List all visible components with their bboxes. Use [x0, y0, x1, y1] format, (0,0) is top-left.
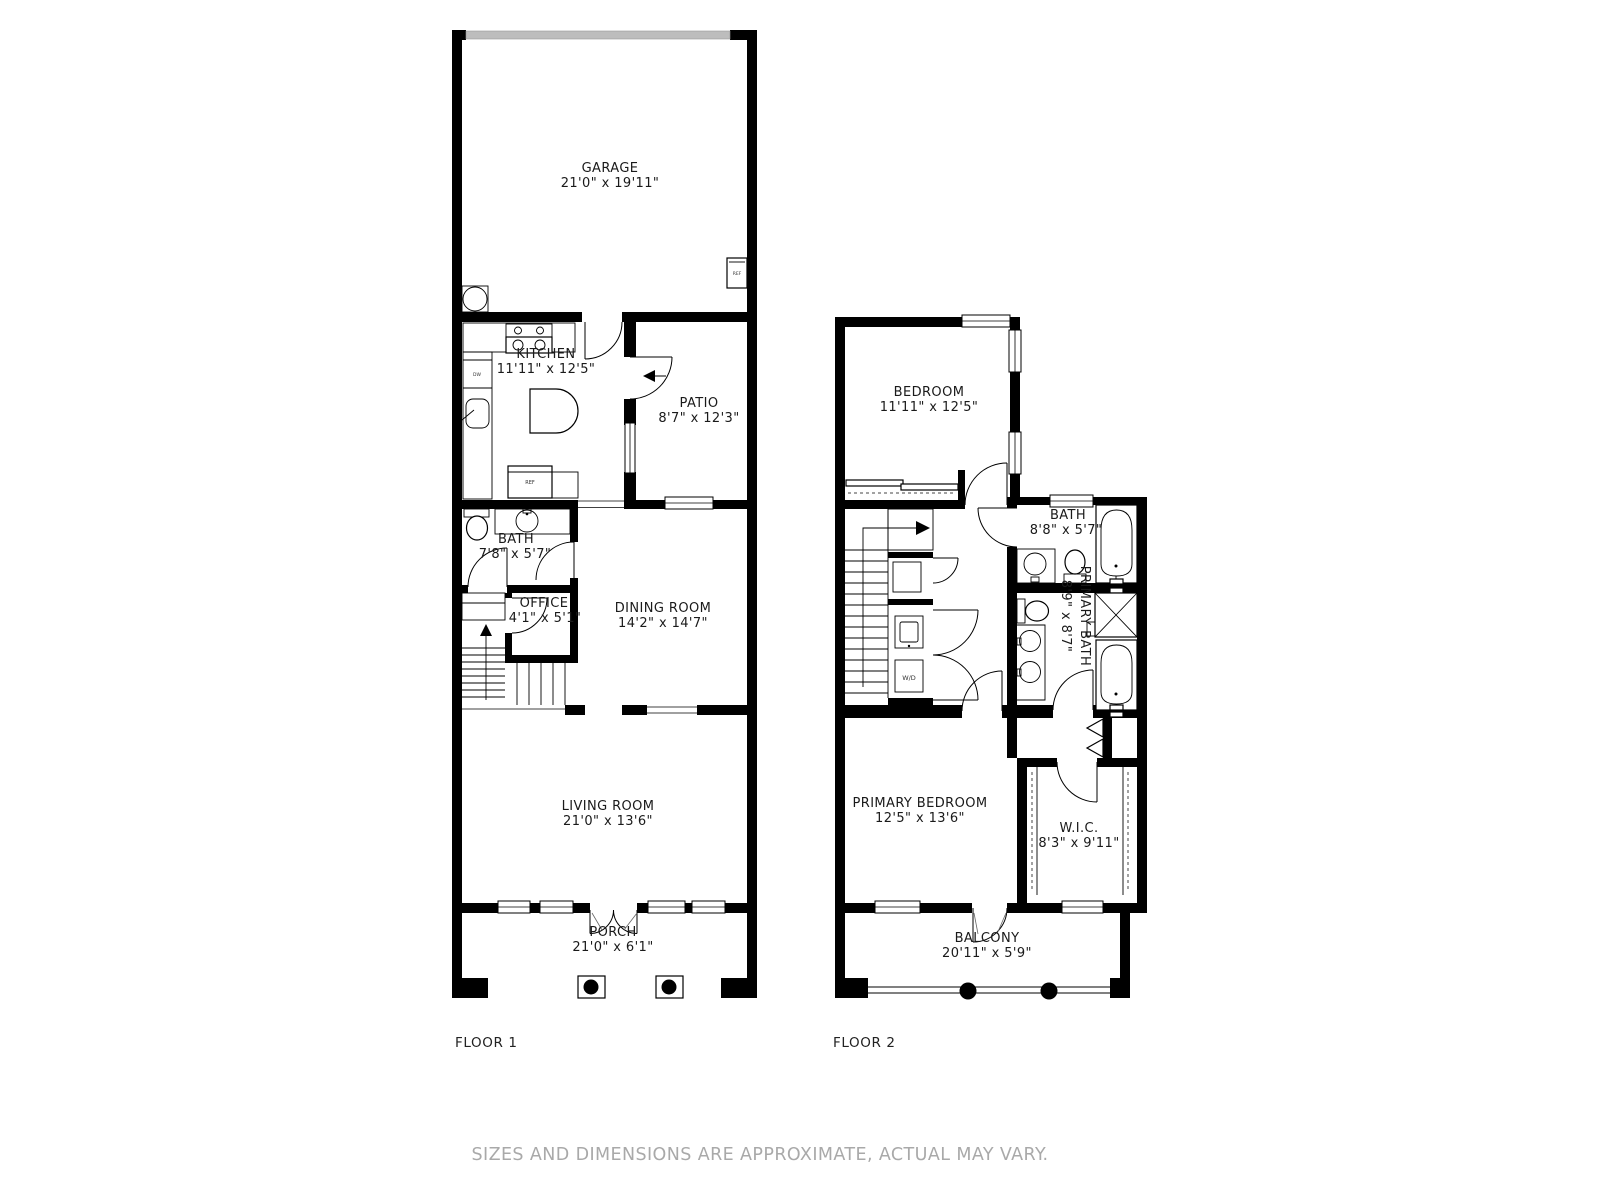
kitchen-ref-label: REF	[525, 480, 535, 486]
room-name: PORCH	[589, 925, 636, 940]
room-name: BALCONY	[955, 931, 1020, 946]
kitchen-patio-wall	[624, 312, 672, 502]
washer-dryer-label: W/D	[902, 674, 916, 682]
water-heater-icon	[462, 286, 488, 312]
room-dims: 20'11" x 5'9"	[942, 946, 1032, 961]
room-dims: 11'11" x 12'5"	[880, 400, 979, 415]
floor1-bath-sink-icon	[495, 509, 570, 534]
porch-column-icon	[578, 976, 605, 998]
room-label-porch: PORCH 21'0" x 6'1"	[572, 925, 653, 955]
room-dims: 8'7" x 12'3"	[658, 411, 739, 426]
bedroom-closet	[835, 470, 965, 509]
floorplan-page: GARAGE 21'0" x 19'11" KITCHEN 11'11" x 1…	[0, 0, 1600, 1200]
room-label-bedroom: BEDROOM 11'11" x 12'5"	[880, 385, 979, 415]
kitchen-dining-wall	[452, 500, 624, 509]
floor2-bath-sink-icon	[1017, 549, 1055, 583]
room-name: PRIMARY BEDROOM	[853, 796, 988, 811]
room-dims: 21'0" x 19'11"	[561, 176, 660, 191]
kitchen-island	[530, 389, 578, 433]
understair-closet	[462, 593, 505, 620]
room-label-patio: PATIO 8'7" x 12'3"	[658, 396, 739, 426]
garage-ref-label: REF	[733, 271, 742, 277]
room-label-balcony: BALCONY 20'11" x 5'9"	[942, 931, 1032, 961]
floor1-toilet-icon	[464, 509, 489, 540]
dining-living-wall	[462, 705, 757, 715]
primary-bedroom-door	[962, 671, 1002, 711]
room-name: BEDROOM	[894, 385, 965, 400]
room-label-living: LIVING ROOM 21'0" x 13'6"	[562, 799, 655, 829]
room-dims: 4'1" x 5'1"	[509, 611, 582, 626]
room-dims: 8'8" x 5'7"	[1030, 523, 1103, 538]
dishwasher-label: DW	[473, 372, 481, 378]
kitchen-refrigerator-icon	[508, 466, 578, 498]
floorplan-drawing: GARAGE 21'0" x 19'11" KITCHEN 11'11" x 1…	[0, 0, 1600, 1200]
room-name: DINING ROOM	[615, 601, 711, 616]
primary-vanity	[1017, 625, 1045, 700]
primary-bath-door	[1053, 670, 1093, 710]
room-dims: 21'0" x 6'1"	[572, 940, 653, 955]
porch-column-icon	[656, 976, 683, 998]
room-name: BATH	[1050, 508, 1086, 523]
linen-closet-bifold-icon	[1087, 719, 1103, 757]
room-name: KITCHEN	[516, 347, 575, 362]
floor2-plan: BEDROOM 11'11" x 12'5" BATH 8'8" x 5'7" …	[835, 315, 1147, 1000]
room-dims: 12'5" x 13'6"	[875, 811, 965, 826]
bedroom-door	[965, 463, 1007, 505]
stairs-direction-arrow-icon	[916, 521, 930, 535]
room-name: PRIMARY BATH	[1077, 566, 1092, 666]
kitchen-sink-icon	[462, 399, 489, 428]
entry-arrow-icon	[643, 370, 655, 382]
hall-closet	[888, 552, 958, 605]
washer-icon	[895, 616, 923, 648]
stairs-up-arrow-icon	[480, 624, 492, 636]
bathtub-icon	[1096, 505, 1137, 597]
room-label-primary-bedroom: PRIMARY BEDROOM 12'5" x 13'6"	[853, 796, 988, 826]
shower-icon	[1087, 593, 1137, 637]
room-label-dining: DINING ROOM 14'2" x 14'7"	[615, 601, 711, 631]
room-label-wic: W.I.C. 8'3" x 9'11"	[1038, 821, 1119, 851]
floor2-label: FLOOR 2	[833, 1035, 896, 1051]
room-name: BATH	[498, 532, 534, 547]
primary-toilet-icon	[1017, 599, 1049, 623]
floor1-stairs	[462, 624, 565, 705]
room-dims: 11'11" x 12'5"	[497, 362, 596, 377]
room-label-garage: GARAGE 21'0" x 19'11"	[561, 161, 660, 191]
room-name: LIVING ROOM	[562, 799, 655, 814]
room-label-primary-bath: PRIMARY BATH 8'9" x 8'7"	[1058, 566, 1092, 666]
balcony-column-icon	[960, 983, 977, 1000]
room-label-bath1: BATH 7'8" x 5'7"	[479, 532, 552, 562]
room-name: OFFICE	[520, 596, 569, 611]
laundry-closet	[888, 610, 978, 705]
floor1-plan: GARAGE 21'0" x 19'11" KITCHEN 11'11" x 1…	[452, 28, 757, 998]
balcony-column-icon	[1041, 983, 1058, 1000]
primary-bathtub-icon	[1096, 640, 1137, 717]
room-name: GARAGE	[582, 161, 639, 176]
floor1-label: FLOOR 1	[455, 1035, 518, 1051]
primary-bath	[1017, 593, 1137, 717]
disclaimer-text: SIZES AND DIMENSIONS ARE APPROXIMATE, AC…	[472, 1145, 1049, 1165]
room-dims: 8'9" x 8'7"	[1058, 580, 1073, 653]
patio-wall	[624, 497, 757, 509]
room-name: W.I.C.	[1059, 821, 1098, 836]
room-dims: 21'0" x 13'6"	[563, 814, 653, 829]
garage-door	[466, 28, 730, 42]
room-dims: 14'2" x 14'7"	[618, 616, 708, 631]
room-dims: 8'3" x 9'11"	[1038, 836, 1119, 851]
room-label-bath2: BATH 8'8" x 5'7"	[1030, 508, 1103, 538]
room-name: PATIO	[680, 396, 719, 411]
room-dims: 7'8" x 5'7"	[479, 547, 552, 562]
